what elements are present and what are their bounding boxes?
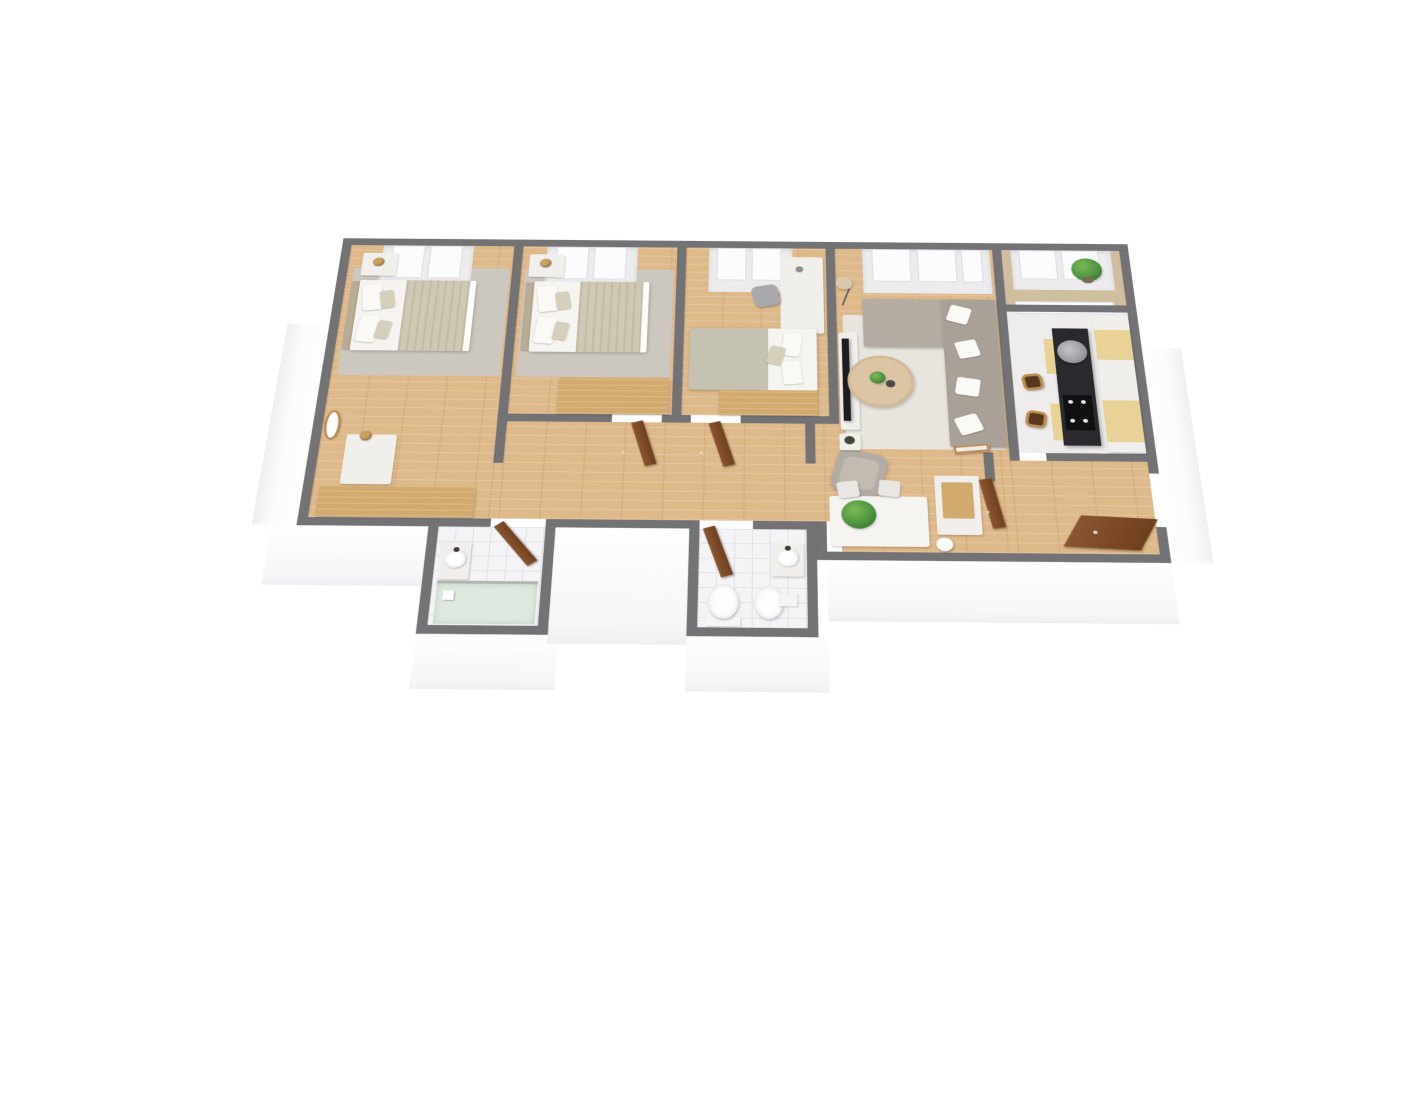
dining-chair: [836, 480, 860, 498]
wall-bath2-top: [753, 521, 807, 530]
sofa-chaise: [862, 299, 947, 348]
shower-control: [442, 590, 454, 599]
window-pane: [592, 247, 627, 280]
bedroom1-wood-bench: [315, 486, 476, 517]
dining-fern-plant: [841, 500, 877, 529]
balcony-plant-pot: [1081, 276, 1094, 283]
skirt-bathroom-2: [685, 636, 830, 693]
bidet-cistern: [778, 593, 797, 606]
wall-balcony-kitchen: [1006, 305, 1128, 313]
entry-round-lamp: [936, 537, 954, 551]
burner: [1083, 419, 1088, 423]
bedroom3-office-chair: [750, 284, 781, 308]
wall-bath1-top: [439, 518, 492, 527]
cooktop: [1063, 395, 1096, 430]
side-table-plant: [844, 436, 855, 444]
dining-chair: [878, 480, 901, 498]
wall-bedrooms-south-a: [497, 413, 612, 422]
bathroom2-faucet: [785, 546, 791, 551]
wall-bottom-left: [297, 517, 440, 526]
wall-bottom-center: [556, 519, 690, 528]
wall-bedrooms-south-c: [741, 415, 839, 423]
wall-bedrooms-south-b: [662, 415, 691, 423]
window-pane: [960, 250, 984, 283]
coffee-table-plant: [869, 371, 885, 383]
bed2-double-bed: [528, 281, 649, 352]
entry-sideboard: [934, 476, 983, 535]
wall-entry-step: [816, 521, 827, 560]
window-pane: [716, 248, 747, 281]
burner: [1081, 400, 1086, 404]
bed2-accent-pillow: [555, 291, 571, 310]
bar-stool: [1025, 410, 1048, 429]
burner: [1070, 419, 1075, 423]
wall-bath1-bottom: [416, 625, 548, 635]
front-door-handle: [1093, 531, 1098, 534]
window-pane: [426, 246, 463, 279]
wall-bath2-bottom: [686, 627, 818, 637]
window-pane: [1018, 250, 1059, 280]
burner: [1068, 400, 1073, 404]
wall-bath2-north-stub: [805, 424, 815, 464]
sofa-pillow: [955, 377, 981, 397]
bedroom1-dresser: [340, 434, 398, 484]
kitchen-accent-cabinet: [1094, 330, 1134, 360]
bedroom3-door-handle: [700, 452, 703, 455]
desk-lamp: [796, 266, 804, 272]
sideboard-wood-drawers: [941, 482, 975, 518]
window-pane: [871, 249, 912, 282]
wall-kitchen-bottom: [1046, 453, 1147, 462]
skirt-bottom-left: [261, 525, 437, 586]
bed1-accent-pillow: [380, 290, 395, 309]
floor-plan-stage: [0, 0, 1422, 1100]
coffee-table-vase: [886, 380, 896, 387]
bed3-pillow: [781, 360, 803, 384]
hallway-floor: [498, 421, 842, 521]
bedroom3-wood-chest: [718, 390, 818, 416]
bedroom2-wood-chest: [556, 377, 670, 414]
skirt-center: [547, 527, 689, 645]
bathroom2-washbasin: [776, 548, 798, 566]
bed1-blanket-ribs: [397, 280, 471, 351]
window-pane: [916, 249, 958, 282]
bed2-blanket-ribs: [576, 282, 644, 353]
bed3-double-bed: [688, 328, 817, 391]
bar-stool: [1020, 373, 1045, 391]
kitchen-accent-cabinet: [1102, 400, 1144, 442]
kitchen-door-handle: [986, 511, 990, 514]
living-room-window: [862, 249, 993, 294]
floor-lamp-shade: [835, 277, 852, 290]
apartment-3d-floor-plan: [262, 238, 1197, 747]
shower-tray: [433, 583, 538, 624]
skirt-entry: [827, 560, 1179, 624]
bed1-double-bed: [350, 280, 477, 351]
window-pane: [751, 248, 782, 281]
front-door: [1064, 515, 1158, 550]
skirt-bathroom-1: [409, 634, 558, 691]
